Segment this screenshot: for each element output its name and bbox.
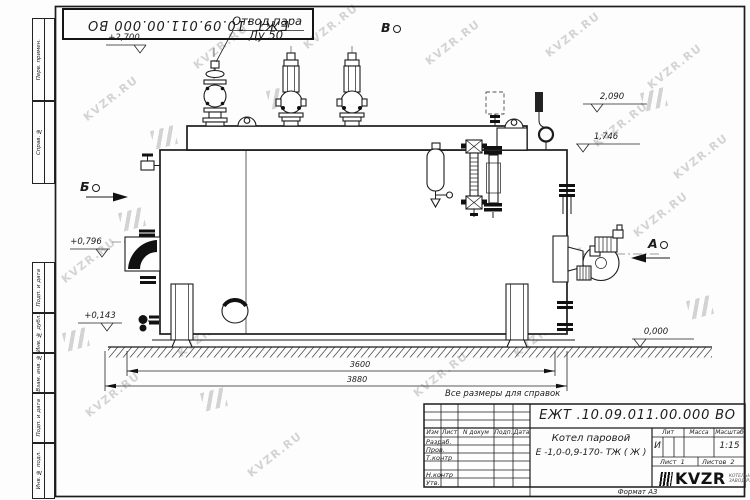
view-marker-a: А <box>648 236 668 251</box>
tb-mass-label: Масса <box>684 429 714 436</box>
level-electrode <box>535 92 553 150</box>
drawing-sheet: KVZR.RU KVZR.RU KVZR.RU KVZR.RU KVZR.RU … <box>0 0 750 500</box>
tb-lit-label: Лит <box>652 429 684 436</box>
margin-cell-vzam-inv: Взам. инв. № <box>32 352 55 394</box>
tb-lit-value: И <box>652 441 663 451</box>
elevation-0796: +0,796 <box>64 237 108 247</box>
margin-cell-sprav-no: Справ. № <box>32 100 55 184</box>
margin-cell-inv-dubl: Инв. № дубл. <box>32 312 55 354</box>
tb-header-ndokum: N докум <box>458 429 494 436</box>
drawing-linework <box>0 0 750 500</box>
steam-outlet-label: Отвод пара <box>228 14 306 28</box>
view-marker-v: В <box>381 20 401 35</box>
elevation-2700: +2,700 <box>102 33 146 43</box>
margin-label: Взам. инв. № <box>33 353 45 393</box>
ground <box>108 340 712 358</box>
left-wall-fittings <box>125 154 160 332</box>
rotation-symbol-icon <box>393 25 401 33</box>
margin-label: Перв. примен. <box>33 19 45 101</box>
rotation-symbol-icon <box>92 184 100 192</box>
manufacturer-logo: KVZR КОТЕЛЬНЫЙ ЗАВОД РЭ <box>660 469 750 488</box>
tb-header-podp: Подп. <box>494 429 513 436</box>
elevation-0000: 0,000 <box>632 327 680 337</box>
margin-label: Подп. и дата <box>33 393 45 443</box>
elevation-2090: 2,090 <box>590 92 634 102</box>
lifting-lug-left <box>238 117 256 126</box>
tb-row-nkontr: Н.контр <box>426 471 453 479</box>
margin-cell-podp-data-1: Подп. и дата <box>32 262 55 314</box>
margin-cell-inv-podl: Инв. № подл. <box>32 442 55 499</box>
margin-cell-perv-primen: Перв. примен. <box>32 18 55 102</box>
view-marker-b: Б <box>80 179 100 194</box>
tb-scale-value: 1:15 <box>714 441 745 451</box>
tb-row-utv: Утв. <box>426 479 440 487</box>
steam-outlet-size-label: Ду 50 <box>236 28 296 42</box>
tb-header-list: Лист <box>441 429 458 436</box>
margin-label: Инв. № дубл. <box>33 313 45 353</box>
tb-header-izm: Изм <box>424 429 441 436</box>
tb-header-data: Дата <box>513 429 530 436</box>
product-name: Котел паровой <box>531 433 651 444</box>
safety-valve-1 <box>276 53 306 126</box>
steam-outlet-valve <box>203 61 227 126</box>
title-doc-number: ЕЖТ .10.09.011.00.000 ВО <box>531 408 744 423</box>
margin-label: Справ. № <box>33 101 45 183</box>
coil-icon <box>659 472 673 486</box>
tb-row-tkontr: Т.контр <box>426 454 452 462</box>
tb-sheet: Лист 1 <box>660 458 685 466</box>
rotation-symbol-icon <box>660 241 668 249</box>
tb-scale-label: Масштаб <box>714 429 745 436</box>
logo-text: KVZR <box>675 469 726 488</box>
elevation-0143: +0,143 <box>77 311 123 321</box>
margin-label: Подп. и дата <box>33 263 45 313</box>
tb-row-razrab: Разраб. <box>426 438 452 446</box>
safety-valve-2 <box>337 53 367 126</box>
margin-label: Инв. № подл. <box>33 443 45 498</box>
phantom-outline <box>486 92 504 126</box>
tb-sheets: Листов 2 <box>702 458 735 466</box>
dimension-3880: 3880 <box>332 375 382 384</box>
product-model: Е -1,0-0,9-170- ТЖ ( Ж ) <box>531 448 651 458</box>
tb-row-prov: Пров. <box>426 446 445 454</box>
elevation-1746: 1,746 <box>584 132 628 142</box>
dimension-3600: 3600 <box>335 360 385 369</box>
logo-subtext: КОТЕЛЬНЫЙ ЗАВОД РЭ <box>729 474 750 484</box>
manhole <box>222 299 248 323</box>
margin-cell-podp-data-2: Подп. и дата <box>32 392 55 444</box>
lifting-lug-right <box>497 119 527 150</box>
format-label: Формат А3 <box>530 488 745 496</box>
reference-note: Все размеры для справок <box>445 389 560 399</box>
